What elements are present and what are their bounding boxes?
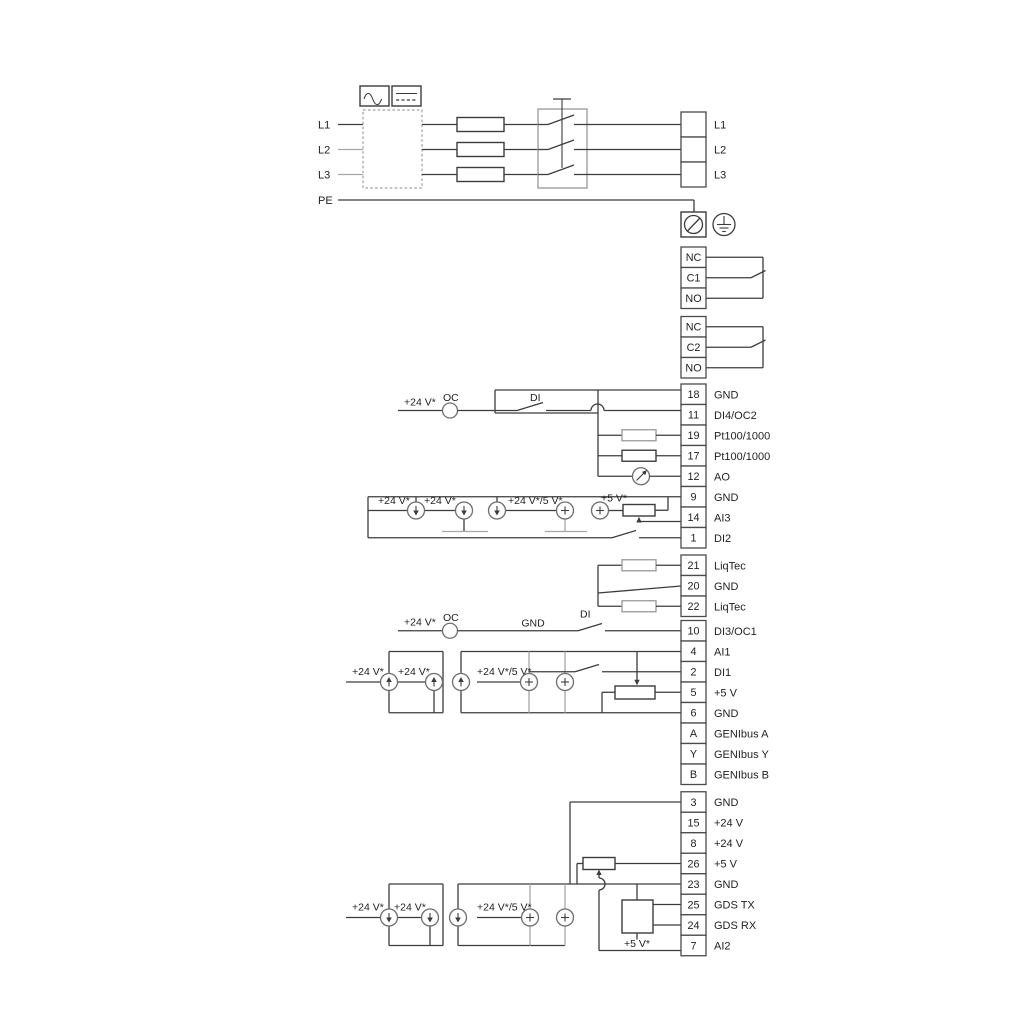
supply-label: +24 V* <box>352 666 384 678</box>
terminal-cell <box>681 112 706 137</box>
terminal-label: LiqTec <box>714 601 746 613</box>
oc-label: OC <box>443 392 459 404</box>
terminal-number: Y <box>690 749 697 761</box>
terminal-label: DI3/OC1 <box>714 626 757 638</box>
pe-screw-terminal <box>681 212 706 237</box>
supply-label: +24 V* <box>378 495 410 507</box>
terminal-label: GDS RX <box>714 920 757 932</box>
terminal-label: DI4/OC2 <box>714 410 757 422</box>
terminal-number: 23 <box>687 879 699 891</box>
terminal-number: 3 <box>690 797 696 809</box>
terminal-cell <box>681 137 706 162</box>
mains-label-pe: PE <box>318 195 333 207</box>
terminal-label: LiqTec <box>714 560 746 572</box>
mains-label-l2: L2 <box>318 145 330 157</box>
current-sink-circle <box>422 909 439 926</box>
liqtec-sensor <box>622 601 656 612</box>
terminal-number: 4 <box>690 646 696 658</box>
terminal-number: 12 <box>687 471 699 483</box>
terminal-label: AI1 <box>714 646 731 658</box>
current-sink-circle <box>489 502 506 519</box>
oc-label: OC <box>443 612 459 624</box>
diagram-canvas: L1 L2 L3 PE <box>0 0 1024 1024</box>
voltage-source-circle <box>521 674 538 691</box>
digital-input-switch <box>578 624 602 631</box>
terminal-number: 5 <box>690 687 696 699</box>
supply-label: +24 V* <box>404 397 436 409</box>
digital-input-switch <box>575 665 599 672</box>
terminal-number: 21 <box>687 560 699 572</box>
ai1-supply-group: +24 V* +24 V* +24 V*/5 V* <box>346 652 681 713</box>
terminal-label: GND <box>714 708 739 720</box>
terminal-label: AO <box>714 471 730 483</box>
terminal-label: AI2 <box>714 941 731 953</box>
terminal-number: 6 <box>690 708 696 720</box>
terminal-number: 26 <box>687 858 699 870</box>
terminal-label: GND <box>714 492 739 504</box>
terminal-number: B <box>690 769 697 781</box>
relay2-changeover-contact <box>706 327 766 368</box>
voltage-source-circle <box>557 909 574 926</box>
terminal-label: +5 V <box>714 687 738 699</box>
terminal-label: L1 <box>714 120 726 132</box>
terminal-number: A <box>690 728 698 740</box>
supply-label: +24 V* <box>394 902 426 914</box>
terminal-label: GND <box>714 879 739 891</box>
terminal-number: 15 <box>687 817 699 829</box>
gds-sensor-box: +5 V* <box>622 884 681 950</box>
liqtec-section <box>598 560 681 612</box>
mains-power-section: L1 L2 L3 PE <box>318 86 735 237</box>
supply-label: +5 V* <box>601 493 627 505</box>
current-source-circle <box>453 674 470 691</box>
io-section-3: +5 V* +24 V* +24 V* +24 V*/5 V* <box>346 802 681 951</box>
supply-label: +24 V* <box>398 666 430 678</box>
supply-label: +24 V* <box>404 617 436 629</box>
terminal-number: 18 <box>687 389 699 401</box>
supply-label: +24 V* <box>352 902 384 914</box>
potentiometer <box>602 652 681 713</box>
terminal-number: 17 <box>687 451 699 463</box>
earth-ground-icon <box>713 214 735 236</box>
terminal-label: +5 V <box>714 859 738 871</box>
terminal-strips: L1L2L3NCC1NONCC2NO18GND11DI4/OC219Pt100/… <box>681 112 770 956</box>
ai2-supply-group: +24 V* +24 V* +24 V*/5 V* <box>346 884 574 946</box>
terminal-number: NC <box>686 322 702 334</box>
terminal-number: 14 <box>687 512 699 524</box>
terminal-label: DI1 <box>714 667 731 679</box>
io-section-2: +24 V* OC GND DI +24 V* <box>346 609 681 713</box>
potentiometer <box>623 497 681 523</box>
mains-label-l1: L1 <box>318 120 330 132</box>
fuse-l3 <box>457 168 504 182</box>
wiper-arrow <box>596 870 601 875</box>
current-sink-circle <box>408 502 425 519</box>
terminal-number: C2 <box>687 342 701 354</box>
terminal-cell <box>681 162 706 187</box>
dc-symbol-box <box>392 86 421 106</box>
drive-input-box <box>363 110 422 188</box>
pt100-sensor <box>622 430 656 441</box>
terminal-number: 1 <box>690 533 696 545</box>
terminal-number: 20 <box>687 581 699 593</box>
terminal-number: 22 <box>687 601 699 613</box>
terminal-label: GDS TX <box>714 900 755 912</box>
terminal-label: Pt100/1000 <box>714 451 770 463</box>
terminal-label: AI3 <box>714 512 731 524</box>
terminal-label: GENIbus Y <box>714 749 769 761</box>
terminal-number: 8 <box>690 838 696 850</box>
digital-input-switch <box>612 531 636 538</box>
wiring-diagram: L1 L2 L3 PE <box>0 0 1024 1024</box>
terminal-label: GENIbus A <box>714 728 769 740</box>
terminal-number: 24 <box>687 920 699 932</box>
terminal-label: +24 V <box>714 818 744 830</box>
wiper-arrow <box>634 680 639 686</box>
analog-output-meter-icon <box>633 468 650 485</box>
terminal-number: 2 <box>690 667 696 679</box>
terminal-label: DI2 <box>714 533 731 545</box>
voltage-source-circle <box>592 502 609 519</box>
current-source-circle <box>381 674 398 691</box>
terminal-number: NC <box>686 252 702 264</box>
supply-label: +24 V*/5 V* <box>508 495 563 507</box>
terminal-number: 19 <box>687 430 699 442</box>
voltage-source-circle <box>557 674 574 691</box>
pt100-sensor <box>622 450 656 461</box>
di-label: DI <box>580 609 591 621</box>
io-section-1: +24 V* OC DI <box>368 390 681 538</box>
terminal-number: 10 <box>687 626 699 638</box>
current-sink-circle <box>450 909 467 926</box>
terminal-label: L3 <box>714 170 726 182</box>
terminal-number: 11 <box>688 410 699 422</box>
gnd-label: GND <box>521 618 545 630</box>
terminal-label: GND <box>714 797 739 809</box>
terminal-number: 7 <box>690 940 696 952</box>
terminal-label: GND <box>714 581 739 593</box>
fuse-l2 <box>457 143 504 157</box>
terminal-label: GENIbus B <box>714 769 769 781</box>
terminal-number: 25 <box>687 899 699 911</box>
relay-outputs-section <box>706 257 766 368</box>
terminal-number: 9 <box>690 492 696 504</box>
mains-label-l3: L3 <box>318 170 330 182</box>
terminal-label: Pt100/1000 <box>714 430 770 442</box>
fuse-l1 <box>457 118 504 132</box>
terminal-label: GND <box>714 389 739 401</box>
terminal-label: +24 V <box>714 838 744 850</box>
current-sink-circle <box>456 502 473 519</box>
voltage-source-circle <box>522 909 539 926</box>
open-collector-circle <box>443 403 458 418</box>
supply-label: +5 V* <box>624 938 650 950</box>
open-collector-circle <box>443 623 458 638</box>
main-switch <box>538 99 681 188</box>
terminal-number: NO <box>685 363 701 375</box>
voltage-source-circle <box>557 502 574 519</box>
di-label: DI <box>530 392 541 404</box>
current-source-circle <box>426 674 443 691</box>
terminal-label: L2 <box>714 145 726 157</box>
relay1-changeover-contact <box>706 257 766 298</box>
terminal-number: C1 <box>687 273 701 285</box>
supply-label: +24 V* <box>424 495 456 507</box>
terminal-number: NO <box>685 293 701 305</box>
current-sink-circle <box>381 909 398 926</box>
liqtec-sensor <box>622 560 656 571</box>
